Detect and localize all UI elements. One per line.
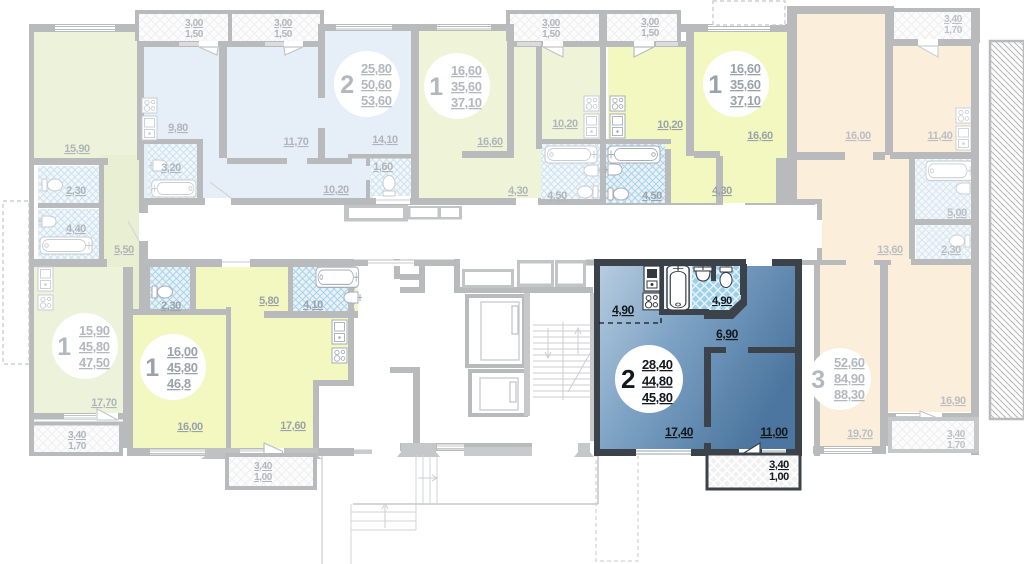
svg-text:16,60: 16,60 — [451, 63, 482, 78]
svg-text:15,90: 15,90 — [79, 323, 110, 338]
svg-text:47,50: 47,50 — [79, 355, 110, 370]
svg-text:3,40: 3,40 — [68, 430, 87, 441]
svg-text:45,80: 45,80 — [167, 360, 198, 375]
svg-text:3,40: 3,40 — [254, 461, 273, 472]
svg-text:1,70: 1,70 — [944, 25, 963, 36]
svg-text:14,10: 14,10 — [372, 134, 398, 146]
svg-text:17,40: 17,40 — [665, 425, 694, 439]
svg-text:3,00: 3,00 — [641, 17, 660, 28]
svg-text:28,40: 28,40 — [642, 357, 673, 372]
svg-text:1,00: 1,00 — [769, 471, 789, 483]
svg-text:3,00: 3,00 — [542, 18, 561, 29]
svg-text:35,60: 35,60 — [451, 79, 482, 94]
svg-text:5,50: 5,50 — [114, 244, 134, 256]
svg-text:4,50: 4,50 — [642, 190, 662, 202]
svg-text:1,60: 1,60 — [373, 161, 393, 173]
svg-text:37,10: 37,10 — [730, 93, 761, 108]
svg-text:16,00: 16,00 — [167, 344, 198, 359]
svg-text:1: 1 — [57, 333, 71, 361]
svg-text:5,00: 5,00 — [947, 207, 967, 219]
svg-text:2,30: 2,30 — [941, 244, 961, 256]
svg-text:3: 3 — [811, 366, 825, 394]
svg-text:1,50: 1,50 — [641, 28, 660, 39]
svg-text:52,60: 52,60 — [834, 355, 865, 370]
svg-text:45,80: 45,80 — [79, 339, 110, 354]
svg-text:13,60: 13,60 — [877, 244, 903, 256]
svg-text:84,90: 84,90 — [834, 371, 865, 386]
svg-text:16,00: 16,00 — [845, 130, 871, 142]
svg-text:45,80: 45,80 — [642, 390, 673, 405]
svg-text:1,50: 1,50 — [542, 29, 561, 40]
svg-text:50,60: 50,60 — [361, 77, 392, 92]
svg-text:2,30: 2,30 — [161, 300, 181, 312]
svg-text:17,60: 17,60 — [280, 420, 306, 432]
svg-text:25,80: 25,80 — [361, 61, 392, 76]
svg-text:3,00: 3,00 — [274, 18, 293, 29]
svg-text:11,70: 11,70 — [284, 136, 309, 148]
svg-text:4,90: 4,90 — [612, 303, 634, 317]
svg-text:53,60: 53,60 — [361, 93, 392, 108]
svg-text:3,20: 3,20 — [161, 162, 181, 174]
svg-text:16,00: 16,00 — [177, 421, 203, 433]
svg-text:10,20: 10,20 — [657, 119, 683, 131]
svg-text:1,50: 1,50 — [274, 29, 293, 40]
svg-text:4,10: 4,10 — [303, 299, 323, 311]
svg-text:6,90: 6,90 — [716, 327, 738, 341]
svg-text:16,60: 16,60 — [747, 130, 773, 142]
svg-text:1: 1 — [708, 71, 722, 99]
svg-text:4,40: 4,40 — [66, 223, 86, 235]
svg-text:37,10: 37,10 — [451, 95, 482, 110]
svg-text:4,30: 4,30 — [508, 185, 528, 197]
svg-text:1,70: 1,70 — [947, 440, 966, 451]
svg-text:3,00: 3,00 — [185, 18, 204, 29]
svg-text:11,00: 11,00 — [760, 425, 788, 439]
svg-text:11,40: 11,40 — [928, 130, 953, 142]
svg-text:2: 2 — [621, 364, 635, 394]
svg-text:1,50: 1,50 — [185, 29, 204, 40]
svg-text:5,80: 5,80 — [259, 295, 279, 307]
svg-text:46,8: 46,8 — [167, 376, 191, 391]
svg-text:35,60: 35,60 — [730, 77, 761, 92]
svg-text:4,50: 4,50 — [547, 190, 567, 202]
svg-text:1,70: 1,70 — [68, 441, 87, 452]
svg-text:16,60: 16,60 — [730, 61, 761, 76]
svg-text:4,90: 4,90 — [712, 295, 732, 307]
svg-text:16,60: 16,60 — [477, 136, 503, 148]
svg-text:15,90: 15,90 — [64, 143, 90, 155]
svg-text:2,30: 2,30 — [66, 185, 86, 197]
svg-text:10,20: 10,20 — [552, 118, 578, 130]
svg-text:17,70: 17,70 — [91, 397, 117, 409]
svg-text:19,70: 19,70 — [847, 428, 873, 440]
svg-text:1,00: 1,00 — [254, 472, 273, 483]
svg-text:3,40: 3,40 — [947, 429, 966, 440]
svg-text:1: 1 — [145, 354, 159, 382]
svg-text:4,30: 4,30 — [712, 185, 732, 197]
svg-text:10,20: 10,20 — [323, 184, 349, 196]
svg-text:2: 2 — [340, 71, 354, 99]
svg-text:1: 1 — [429, 73, 443, 101]
svg-text:9,80: 9,80 — [168, 122, 188, 134]
svg-text:88,30: 88,30 — [834, 387, 865, 402]
svg-text:44,80: 44,80 — [642, 374, 673, 389]
svg-text:3,40: 3,40 — [944, 14, 963, 25]
svg-text:3,40: 3,40 — [769, 459, 789, 471]
svg-text:16,90: 16,90 — [940, 395, 966, 407]
